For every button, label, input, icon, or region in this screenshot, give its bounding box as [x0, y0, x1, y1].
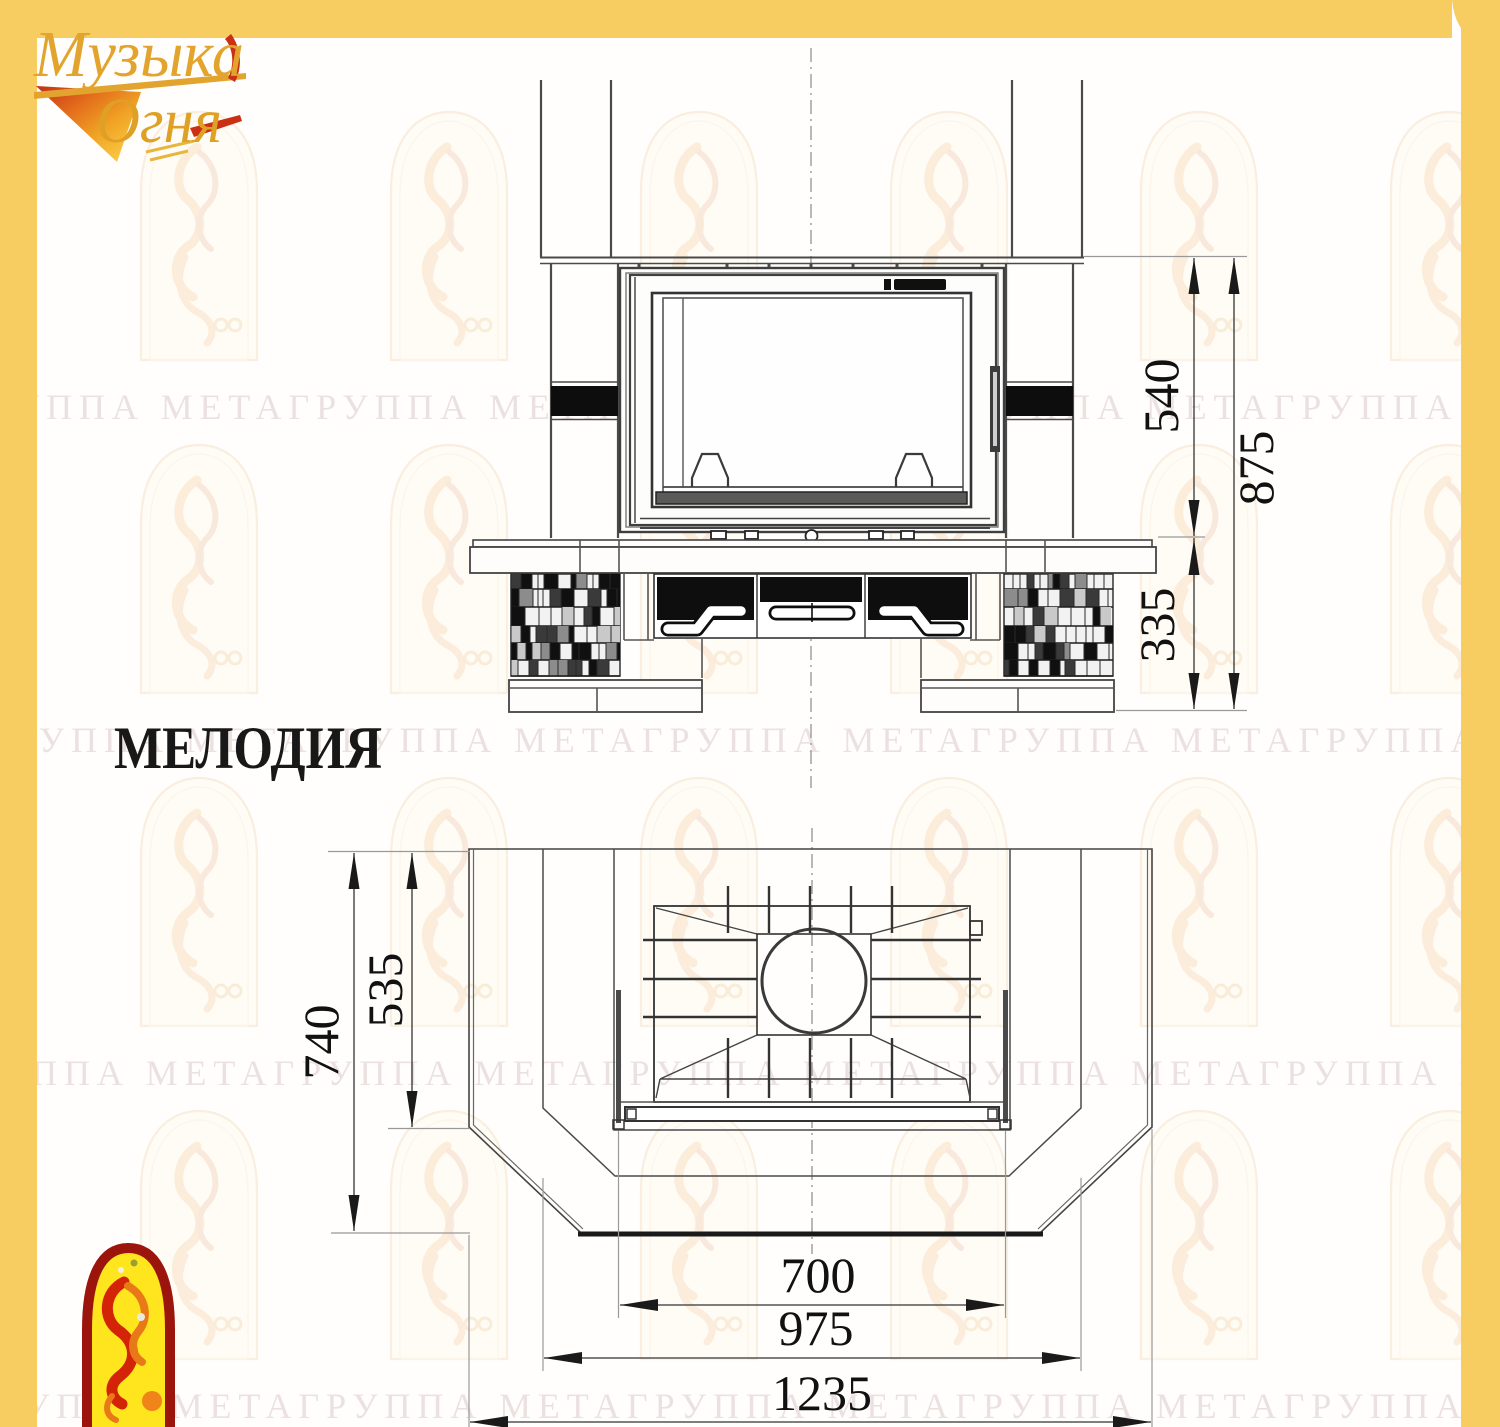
svg-text:700: 700	[781, 1247, 856, 1303]
svg-text:1235: 1235	[772, 1365, 872, 1421]
svg-text:ГРУППА МЕТАГРУППА МЕТАГРУППА М: ГРУППА МЕТАГРУППА МЕТАГРУППА МЕТАГРУППА …	[0, 1386, 1500, 1426]
svg-text:ГРУППА МЕТАГРУППА МЕТАГРУППА М: ГРУППА МЕТАГРУППА МЕТАГРУППА МЕТАГРУППА …	[0, 1053, 1500, 1093]
svg-text:Музыка: Музыка	[33, 18, 244, 91]
svg-text:Огня: Огня	[96, 85, 222, 156]
svg-text:535: 535	[357, 953, 413, 1028]
svg-text:875: 875	[1228, 431, 1284, 506]
svg-text:335: 335	[1129, 588, 1185, 663]
svg-text:740: 740	[293, 1005, 349, 1080]
svg-text:540: 540	[1133, 359, 1189, 434]
svg-text:МЕЛОДИЯ: МЕЛОДИЯ	[114, 715, 382, 781]
svg-text:975: 975	[779, 1300, 854, 1356]
